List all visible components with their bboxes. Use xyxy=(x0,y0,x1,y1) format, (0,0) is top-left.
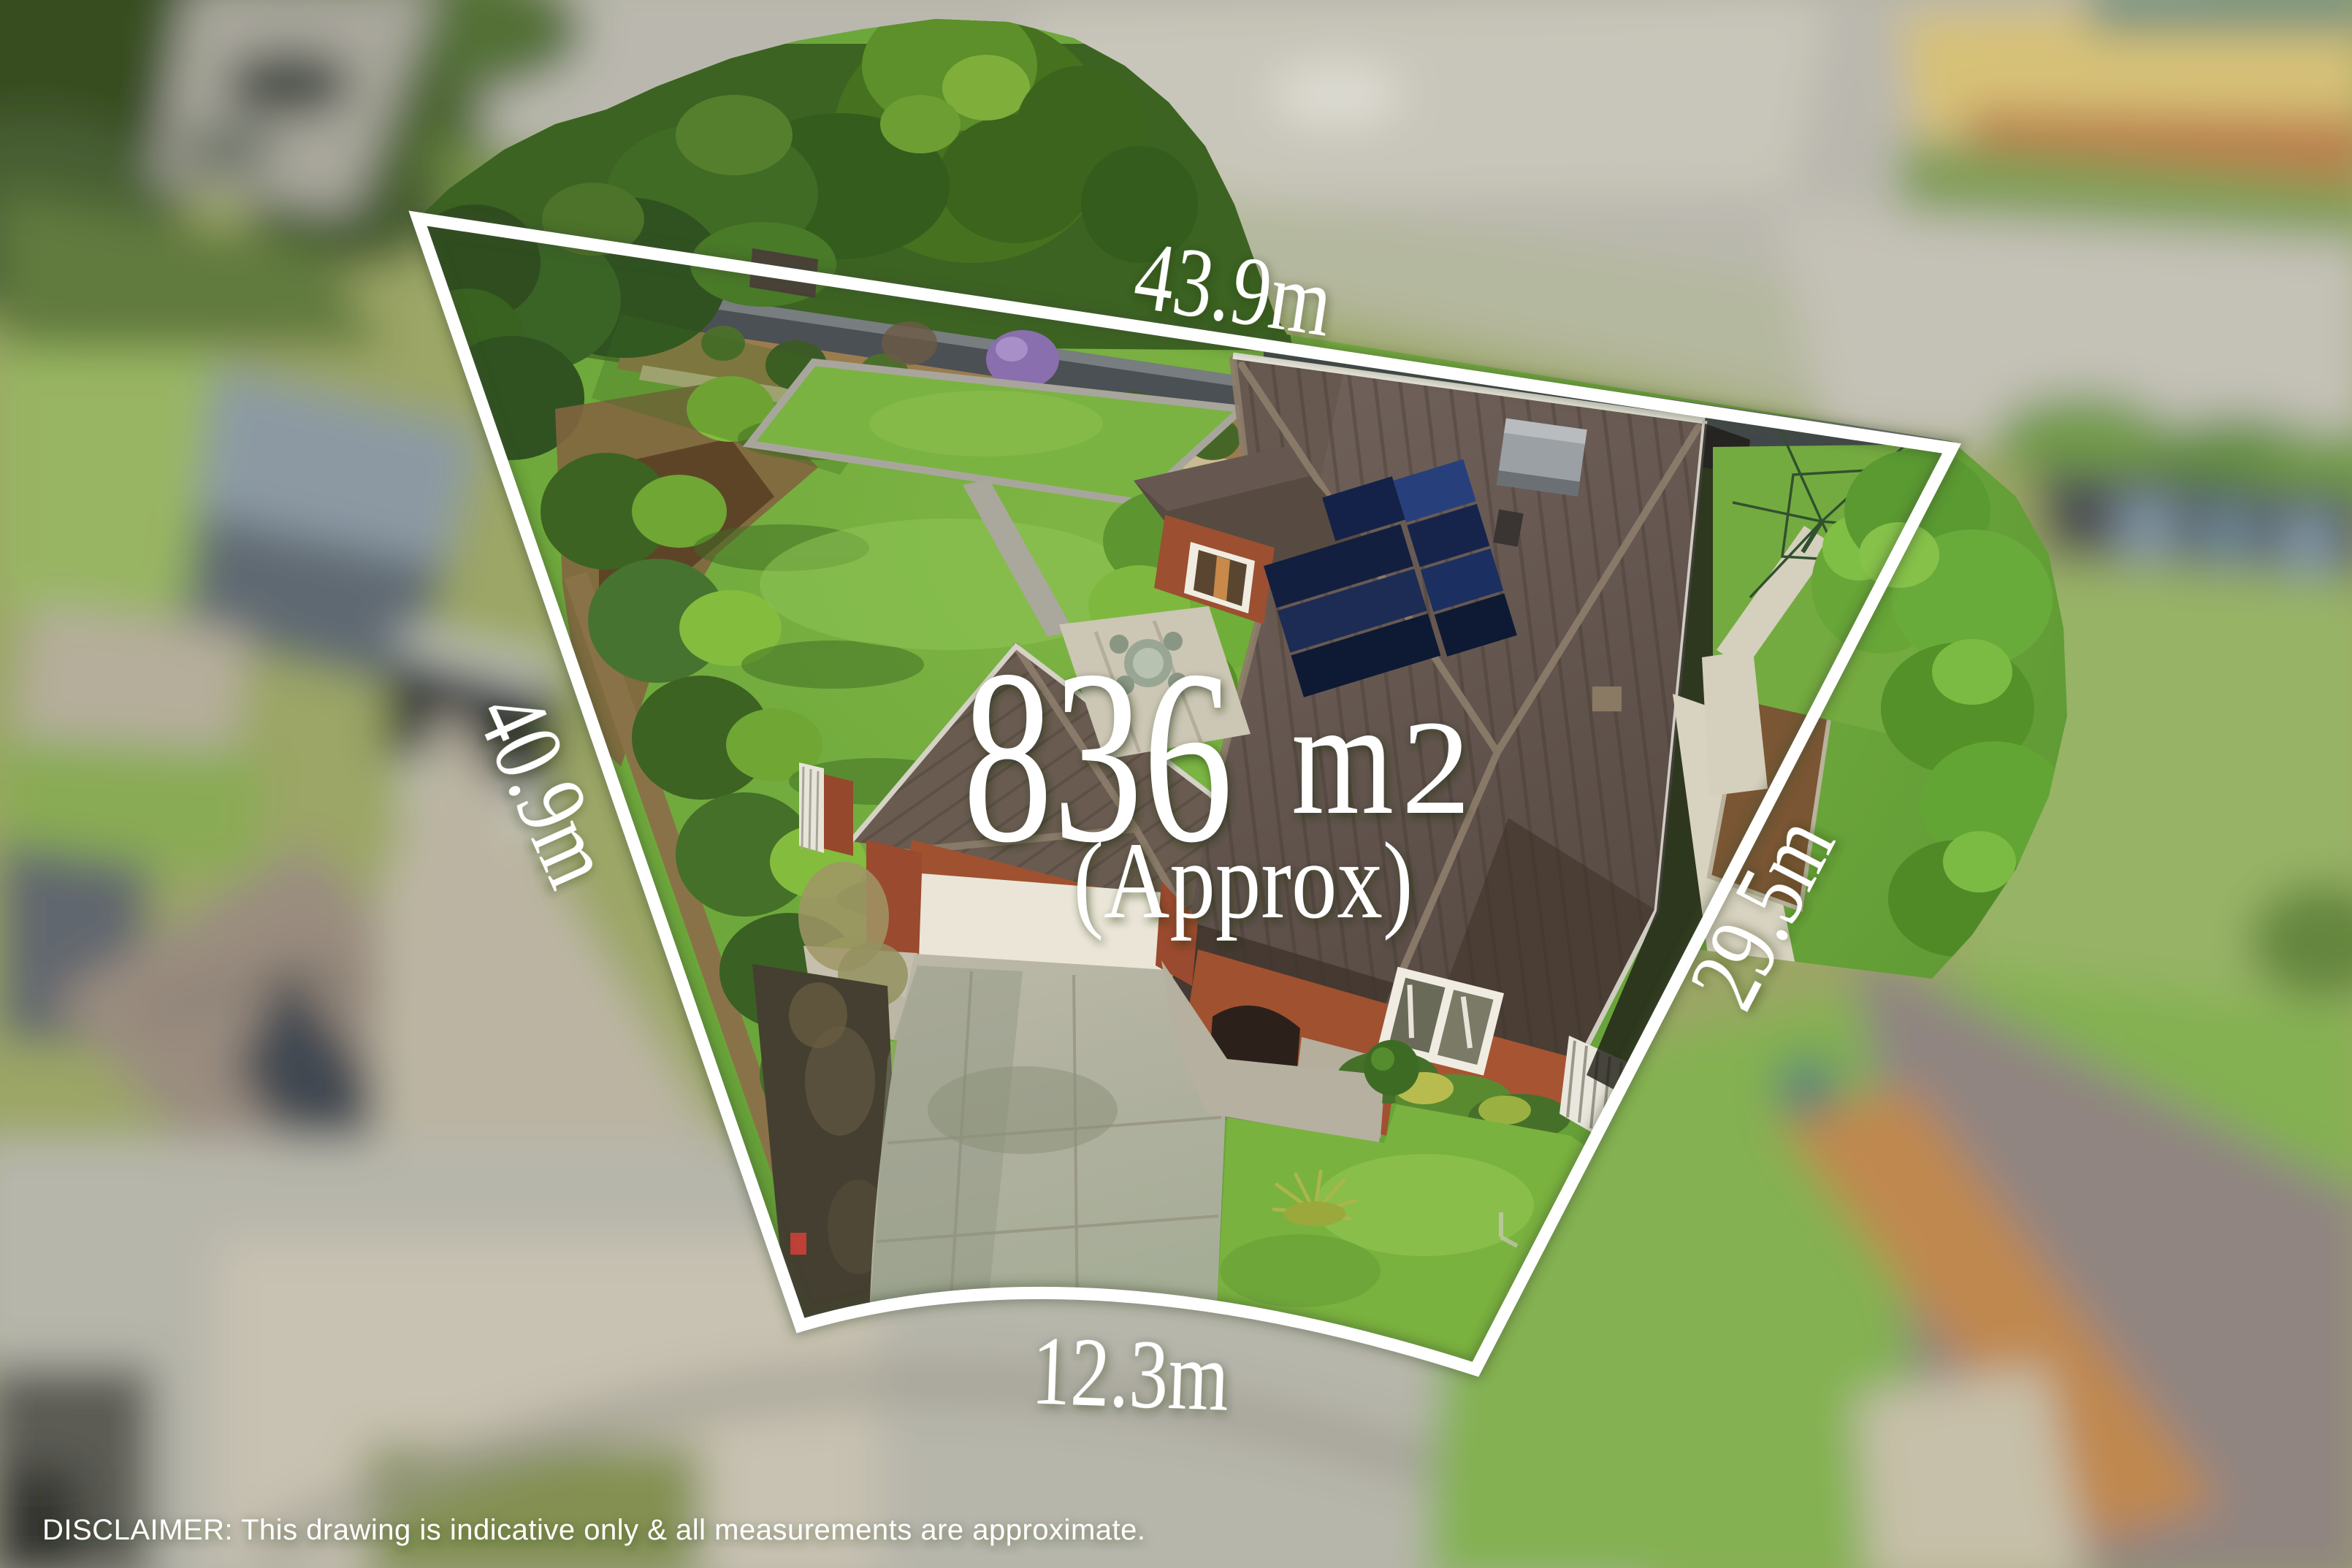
svg-text:(Approx): (Approx) xyxy=(1074,820,1413,941)
svg-text:DISCLAIMER: This drawing is in: DISCLAIMER: This drawing is indicative o… xyxy=(42,1514,1145,1546)
svg-text:12.3m: 12.3m xyxy=(1030,1316,1231,1431)
